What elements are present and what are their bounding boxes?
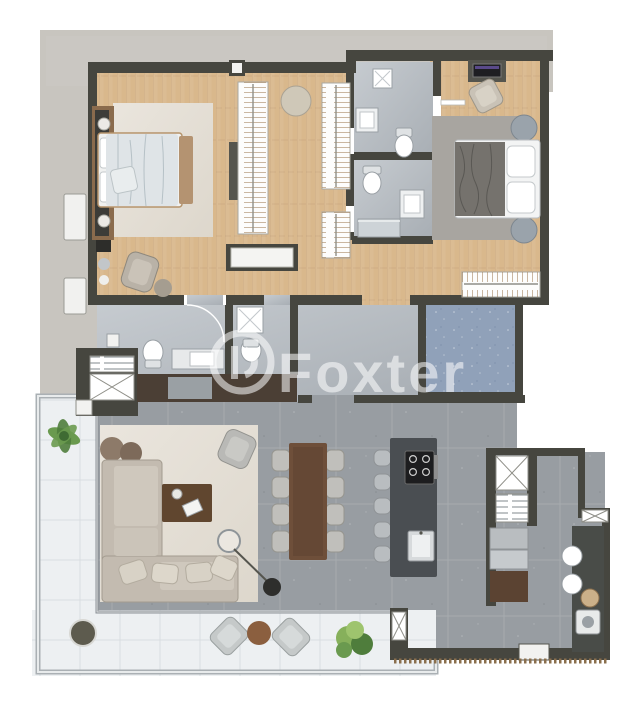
wall-right-bedroom2: [540, 50, 549, 305]
wardrobe-rail: [322, 212, 350, 258]
powder2-door-opening: [264, 295, 290, 305]
kitchen: [374, 438, 438, 577]
side-table: [511, 217, 537, 243]
bed-bench: [179, 136, 193, 204]
closet-pouf: [281, 86, 311, 116]
console-decor: [98, 258, 110, 270]
balcony-side-table: [247, 621, 271, 645]
desk: [468, 60, 506, 82]
pillow: [507, 146, 535, 177]
wash-basin: [562, 574, 582, 594]
console-decor: [96, 240, 111, 252]
wash-basin: [562, 546, 582, 566]
shaft-box: [76, 400, 92, 415]
floor-plan-svg: Foxter: [0, 0, 640, 709]
hall-opening: [362, 295, 410, 305]
wardrobe-rail: [238, 82, 268, 234]
side-table: [511, 115, 537, 141]
window-balcony-step: [392, 612, 406, 640]
planter: [70, 620, 96, 646]
pillow: [507, 182, 535, 213]
watermark-text: Foxter: [278, 341, 467, 404]
switch-plate: [107, 334, 119, 347]
master-door-opening: [186, 295, 224, 305]
bed-2: [455, 140, 540, 218]
throw-pillow: [110, 166, 138, 194]
toilet-2: [363, 166, 381, 194]
nightstand-lamp: [98, 118, 110, 130]
coffee-table: [162, 484, 212, 522]
entry-door: [519, 644, 549, 660]
cabinet: [490, 571, 528, 602]
pouf: [100, 437, 124, 461]
shaft-vent: [90, 356, 134, 372]
island-sink: [408, 531, 434, 561]
living-room: [100, 425, 281, 602]
closet-divider-panel: [229, 142, 238, 200]
appliance: [490, 528, 528, 549]
closet-hall-floor: [352, 238, 433, 298]
wall-top-right: [346, 50, 553, 61]
window-right: [582, 510, 608, 522]
bedroom2-wardrobe: [462, 272, 540, 297]
wall-corridor-right: [578, 448, 585, 514]
toilet-1: [395, 128, 413, 157]
toilet-3: [143, 340, 163, 368]
wall-corridor-top: [530, 448, 585, 456]
nightstand-lamp: [98, 215, 110, 227]
wall-top-master: [88, 62, 355, 73]
elevator: [496, 456, 528, 490]
wall-bath-divider: [354, 152, 433, 160]
top-wall-column: [232, 63, 242, 73]
pantry-shelves: [496, 494, 528, 522]
cooktop: [405, 451, 438, 484]
wardrobe-rail: [322, 83, 350, 189]
floor-plan-canvas: Foxter: [0, 0, 640, 709]
basket: [581, 589, 599, 607]
chaise-cushion: [114, 466, 158, 526]
closet-bench: [231, 248, 293, 267]
console-decor: [99, 275, 109, 285]
appliance: [490, 550, 528, 569]
master-bed: [98, 133, 193, 207]
monitor-screen: [475, 66, 499, 69]
wall-service-right: [515, 298, 523, 398]
master-ottoman: [154, 279, 172, 297]
sideboard-inset: [168, 377, 212, 399]
